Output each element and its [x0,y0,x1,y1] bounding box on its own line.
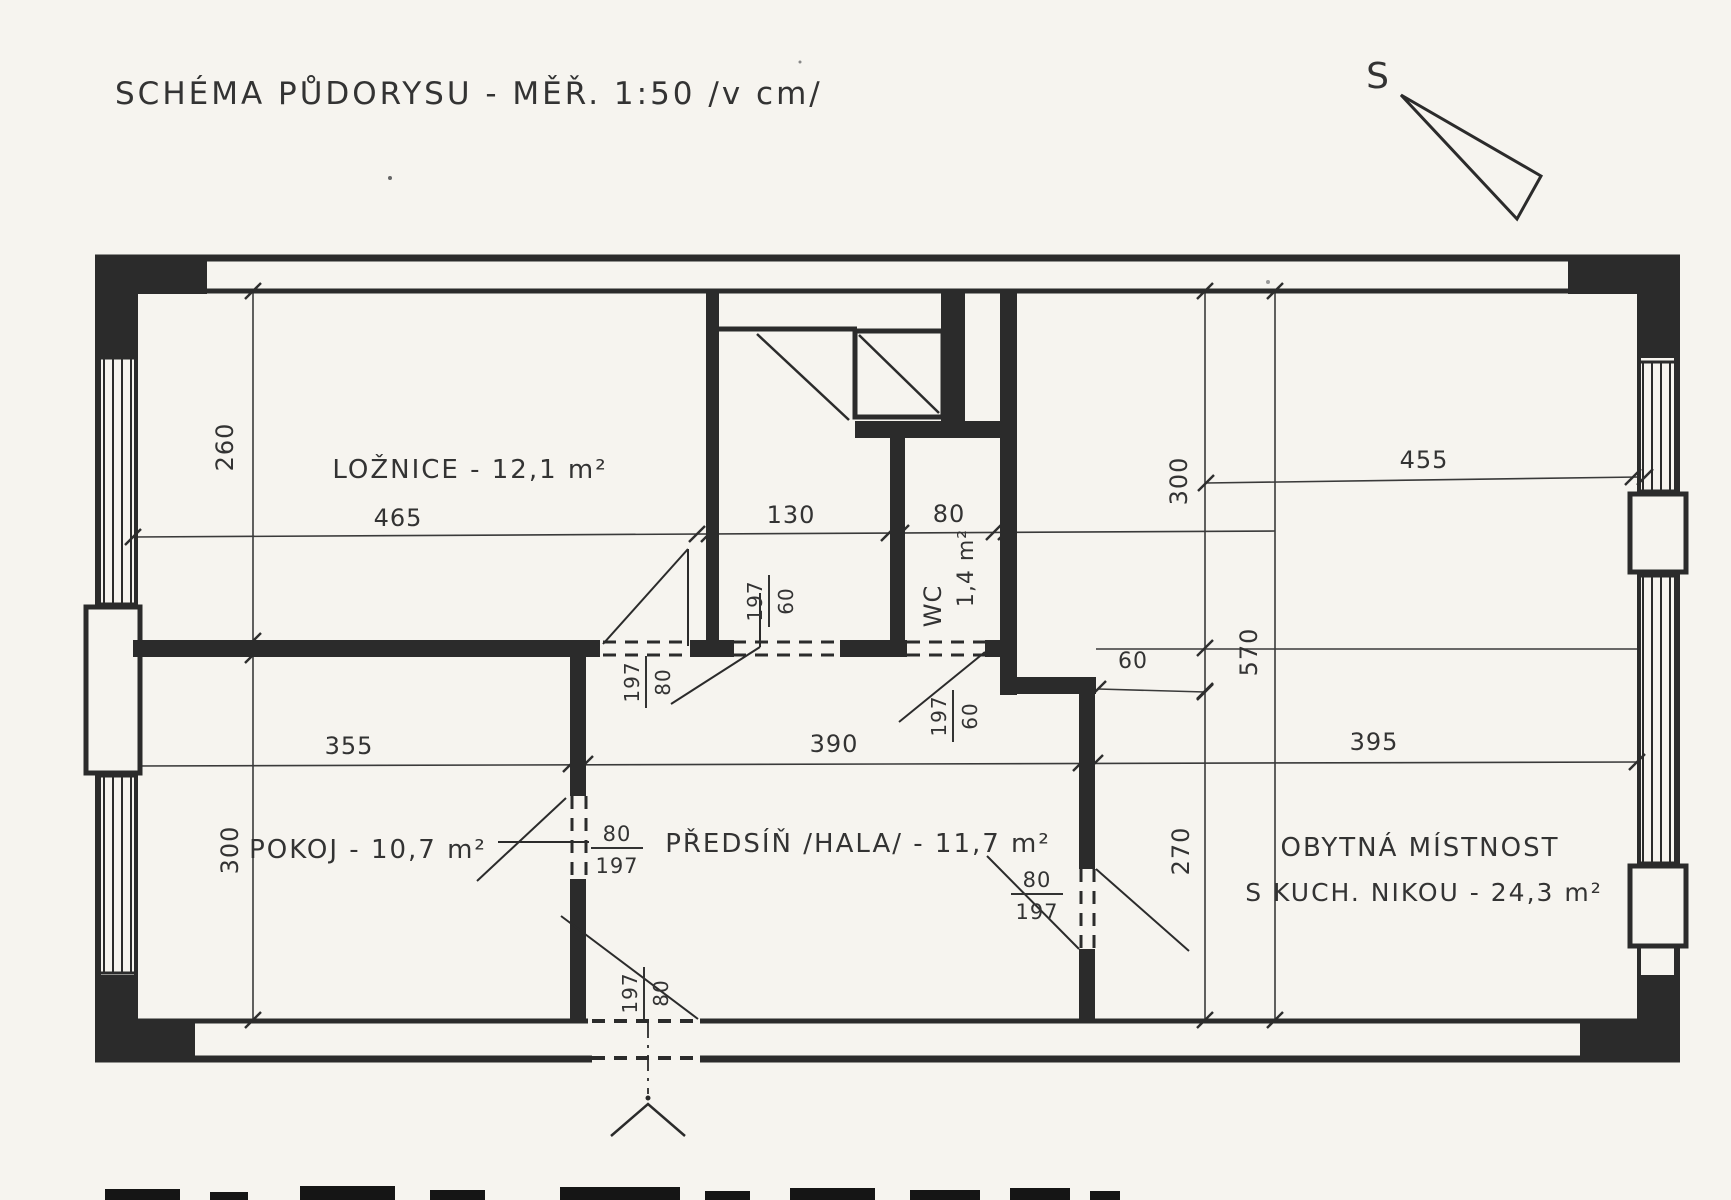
room-label-loznice: LOŽNICE - 12,1 m² [332,453,607,485]
dim-300-right: 300 [1165,457,1193,506]
chimney-fill [941,291,965,426]
door-label-entrance-denominator: 80 [649,979,673,1006]
door-label-entrance-numerator: 197 [618,972,642,1013]
compass-s-label: S [1366,56,1390,97]
dim-570: 570 [1235,628,1263,677]
room-label-obytna-2: S KUCH. NIKOU - 24,3 m² [1245,878,1603,907]
floor-plan-scan: SCHÉMA PŮDORYSU - MĚŘ. 1:50 /v cm/SLOŽNI… [0,0,1731,1200]
dim-260: 260 [211,423,239,472]
dim-270: 270 [1167,827,1195,876]
dim-60: 60 [1118,649,1148,674]
page-title: SCHÉMA PŮDORYSU - MĚŘ. 1:50 /v cm/ [115,75,823,112]
wall-pier-right-upper [1630,494,1686,572]
floor-plan-canvas: SCHÉMA PŮDORYSU - MĚŘ. 1:50 /v cm/SLOŽNI… [0,0,1731,1200]
room-label-wc-area: 1,4 m² [954,529,979,607]
door-label-closet-denominator: 60 [774,587,798,614]
door-label-pokoj-numerator: 80 [603,822,632,846]
room-label-wc: WC [919,585,947,628]
room-label-predsin: PŘEDSÍŇ /HALA/ - 11,7 m² [665,827,1051,859]
door-label-wc-denominator: 60 [958,702,982,729]
dim-300-left: 300 [216,826,244,875]
dim-395: 395 [1350,728,1399,756]
door-label-wc-numerator: 197 [927,695,951,736]
door-label-obytna-numerator: 80 [1023,868,1052,892]
dim-355: 355 [325,732,374,760]
door-label-loznice-denominator: 80 [651,668,675,695]
dim-130: 130 [767,501,816,529]
dim-465: 465 [374,504,423,532]
door-label-pokoj-denominator: 197 [595,854,638,878]
door-label-closet-numerator: 197 [743,580,767,621]
room-label-pokoj: POKOJ - 10,7 m² [249,835,487,865]
door-label-obytna-denominator: 197 [1015,900,1058,924]
door-label-loznice-numerator: 197 [620,661,644,702]
wall-pier-left [86,607,140,773]
dim-390: 390 [810,730,859,758]
room-label-obytna-1: OBYTNÁ MÍSTNOST [1281,831,1560,863]
wall-pier-right-lower [1630,866,1686,946]
dim-455: 455 [1400,446,1449,474]
dim-80-wc: 80 [933,500,966,528]
